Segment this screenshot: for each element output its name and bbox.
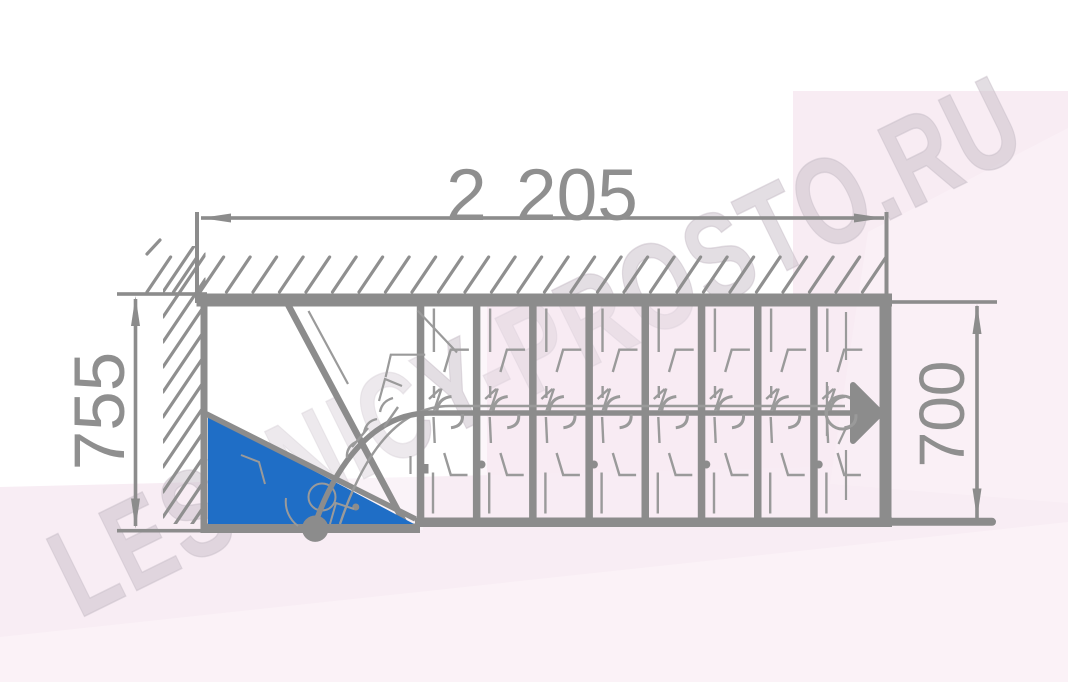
svg-text:755: 755 — [61, 352, 140, 470]
svg-text:2 205: 2 205 — [446, 155, 638, 236]
svg-text:700: 700 — [906, 361, 978, 468]
